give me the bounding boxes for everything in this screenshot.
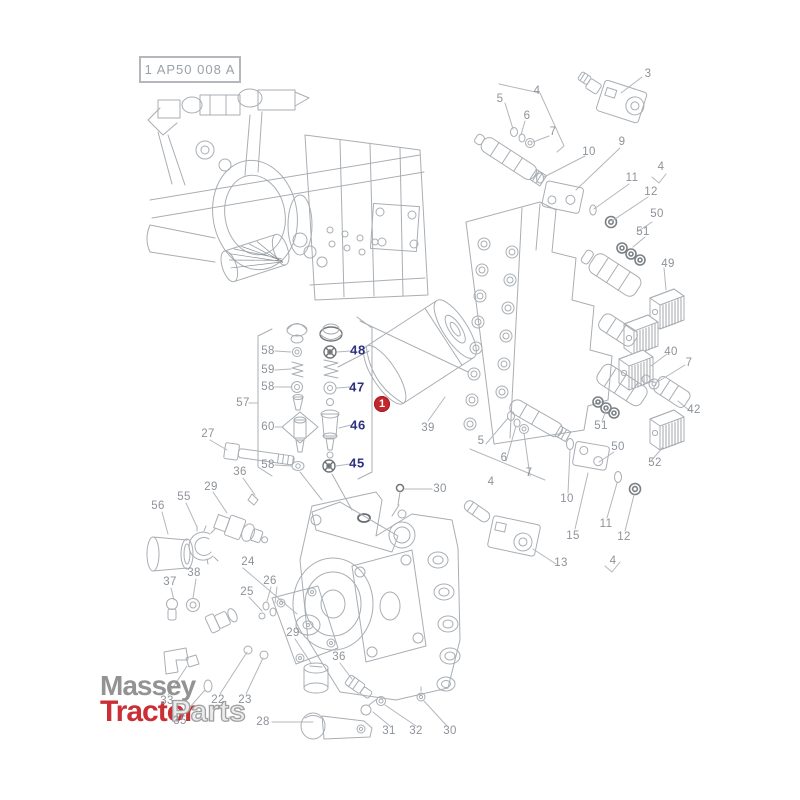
part-label-11: 11: [600, 518, 613, 530]
part-label-58: 58: [261, 459, 275, 471]
part-label-33: 33: [160, 695, 174, 707]
part-label-32: 32: [409, 725, 423, 737]
part-label-59: 59: [261, 364, 275, 376]
part-label-49: 49: [661, 258, 675, 270]
part-label-7: 7: [526, 467, 533, 479]
part-label-51: 51: [636, 226, 650, 238]
part-label-55: 55: [177, 491, 191, 503]
part-label-9: 9: [619, 136, 626, 148]
part-label-27: 27: [201, 428, 215, 440]
part-label-56: 56: [151, 500, 165, 512]
part-label-6: 6: [501, 452, 508, 464]
part-label-50: 50: [611, 441, 625, 453]
part-label-29: 29: [286, 627, 300, 639]
part-label-52: 52: [648, 457, 662, 469]
parts-diagram-page: 1 AP50 008 A Massey Tractor Parts 356741…: [0, 0, 800, 800]
part-label-12: 12: [644, 186, 658, 198]
part-label-36: 36: [332, 651, 346, 663]
part-label-30: 30: [433, 483, 447, 495]
part-label-13: 13: [554, 557, 568, 569]
highlight-callout-1: 1: [374, 396, 390, 412]
part-label-22: 22: [211, 694, 225, 706]
part-label-51: 51: [594, 420, 608, 432]
part-label-29: 29: [204, 481, 218, 493]
part-label-30: 30: [443, 725, 457, 737]
part-label-4: 4: [534, 85, 541, 97]
part-label-24: 24: [241, 556, 255, 568]
part-label-5: 5: [497, 93, 504, 105]
part-label-45: 45: [349, 456, 365, 471]
labels-layer: 3567410911124505149407425150524847464558…: [0, 0, 800, 800]
part-label-60: 60: [261, 421, 275, 433]
part-label-10: 10: [560, 493, 574, 505]
part-label-23: 23: [238, 694, 252, 706]
part-label-39: 39: [421, 422, 435, 434]
part-label-26: 26: [263, 575, 277, 587]
part-label-57: 57: [236, 397, 250, 409]
part-label-35: 35: [173, 715, 187, 727]
part-label-4: 4: [658, 161, 665, 173]
part-label-4: 4: [488, 476, 495, 488]
part-label-50: 50: [650, 208, 664, 220]
part-label-47: 47: [349, 380, 365, 395]
part-label-3: 3: [645, 68, 652, 80]
part-label-28: 28: [256, 716, 270, 728]
part-label-58: 58: [261, 345, 275, 357]
part-label-6: 6: [524, 110, 531, 122]
part-label-48: 48: [350, 343, 366, 358]
part-label-36: 36: [233, 466, 247, 478]
part-label-10: 10: [582, 146, 596, 158]
part-label-31: 31: [382, 725, 396, 737]
part-label-37: 37: [163, 576, 177, 588]
part-label-7: 7: [550, 126, 557, 138]
part-label-46: 46: [350, 418, 366, 433]
part-label-42: 42: [687, 404, 701, 416]
part-label-5: 5: [478, 435, 485, 447]
part-label-11: 11: [626, 172, 639, 184]
part-label-12: 12: [617, 531, 631, 543]
part-label-40: 40: [664, 346, 678, 358]
part-label-38: 38: [187, 567, 201, 579]
part-label-7: 7: [686, 357, 693, 369]
part-label-15: 15: [566, 530, 580, 542]
part-label-25: 25: [240, 586, 254, 598]
part-label-58: 58: [261, 381, 275, 393]
part-label-4: 4: [610, 555, 617, 567]
